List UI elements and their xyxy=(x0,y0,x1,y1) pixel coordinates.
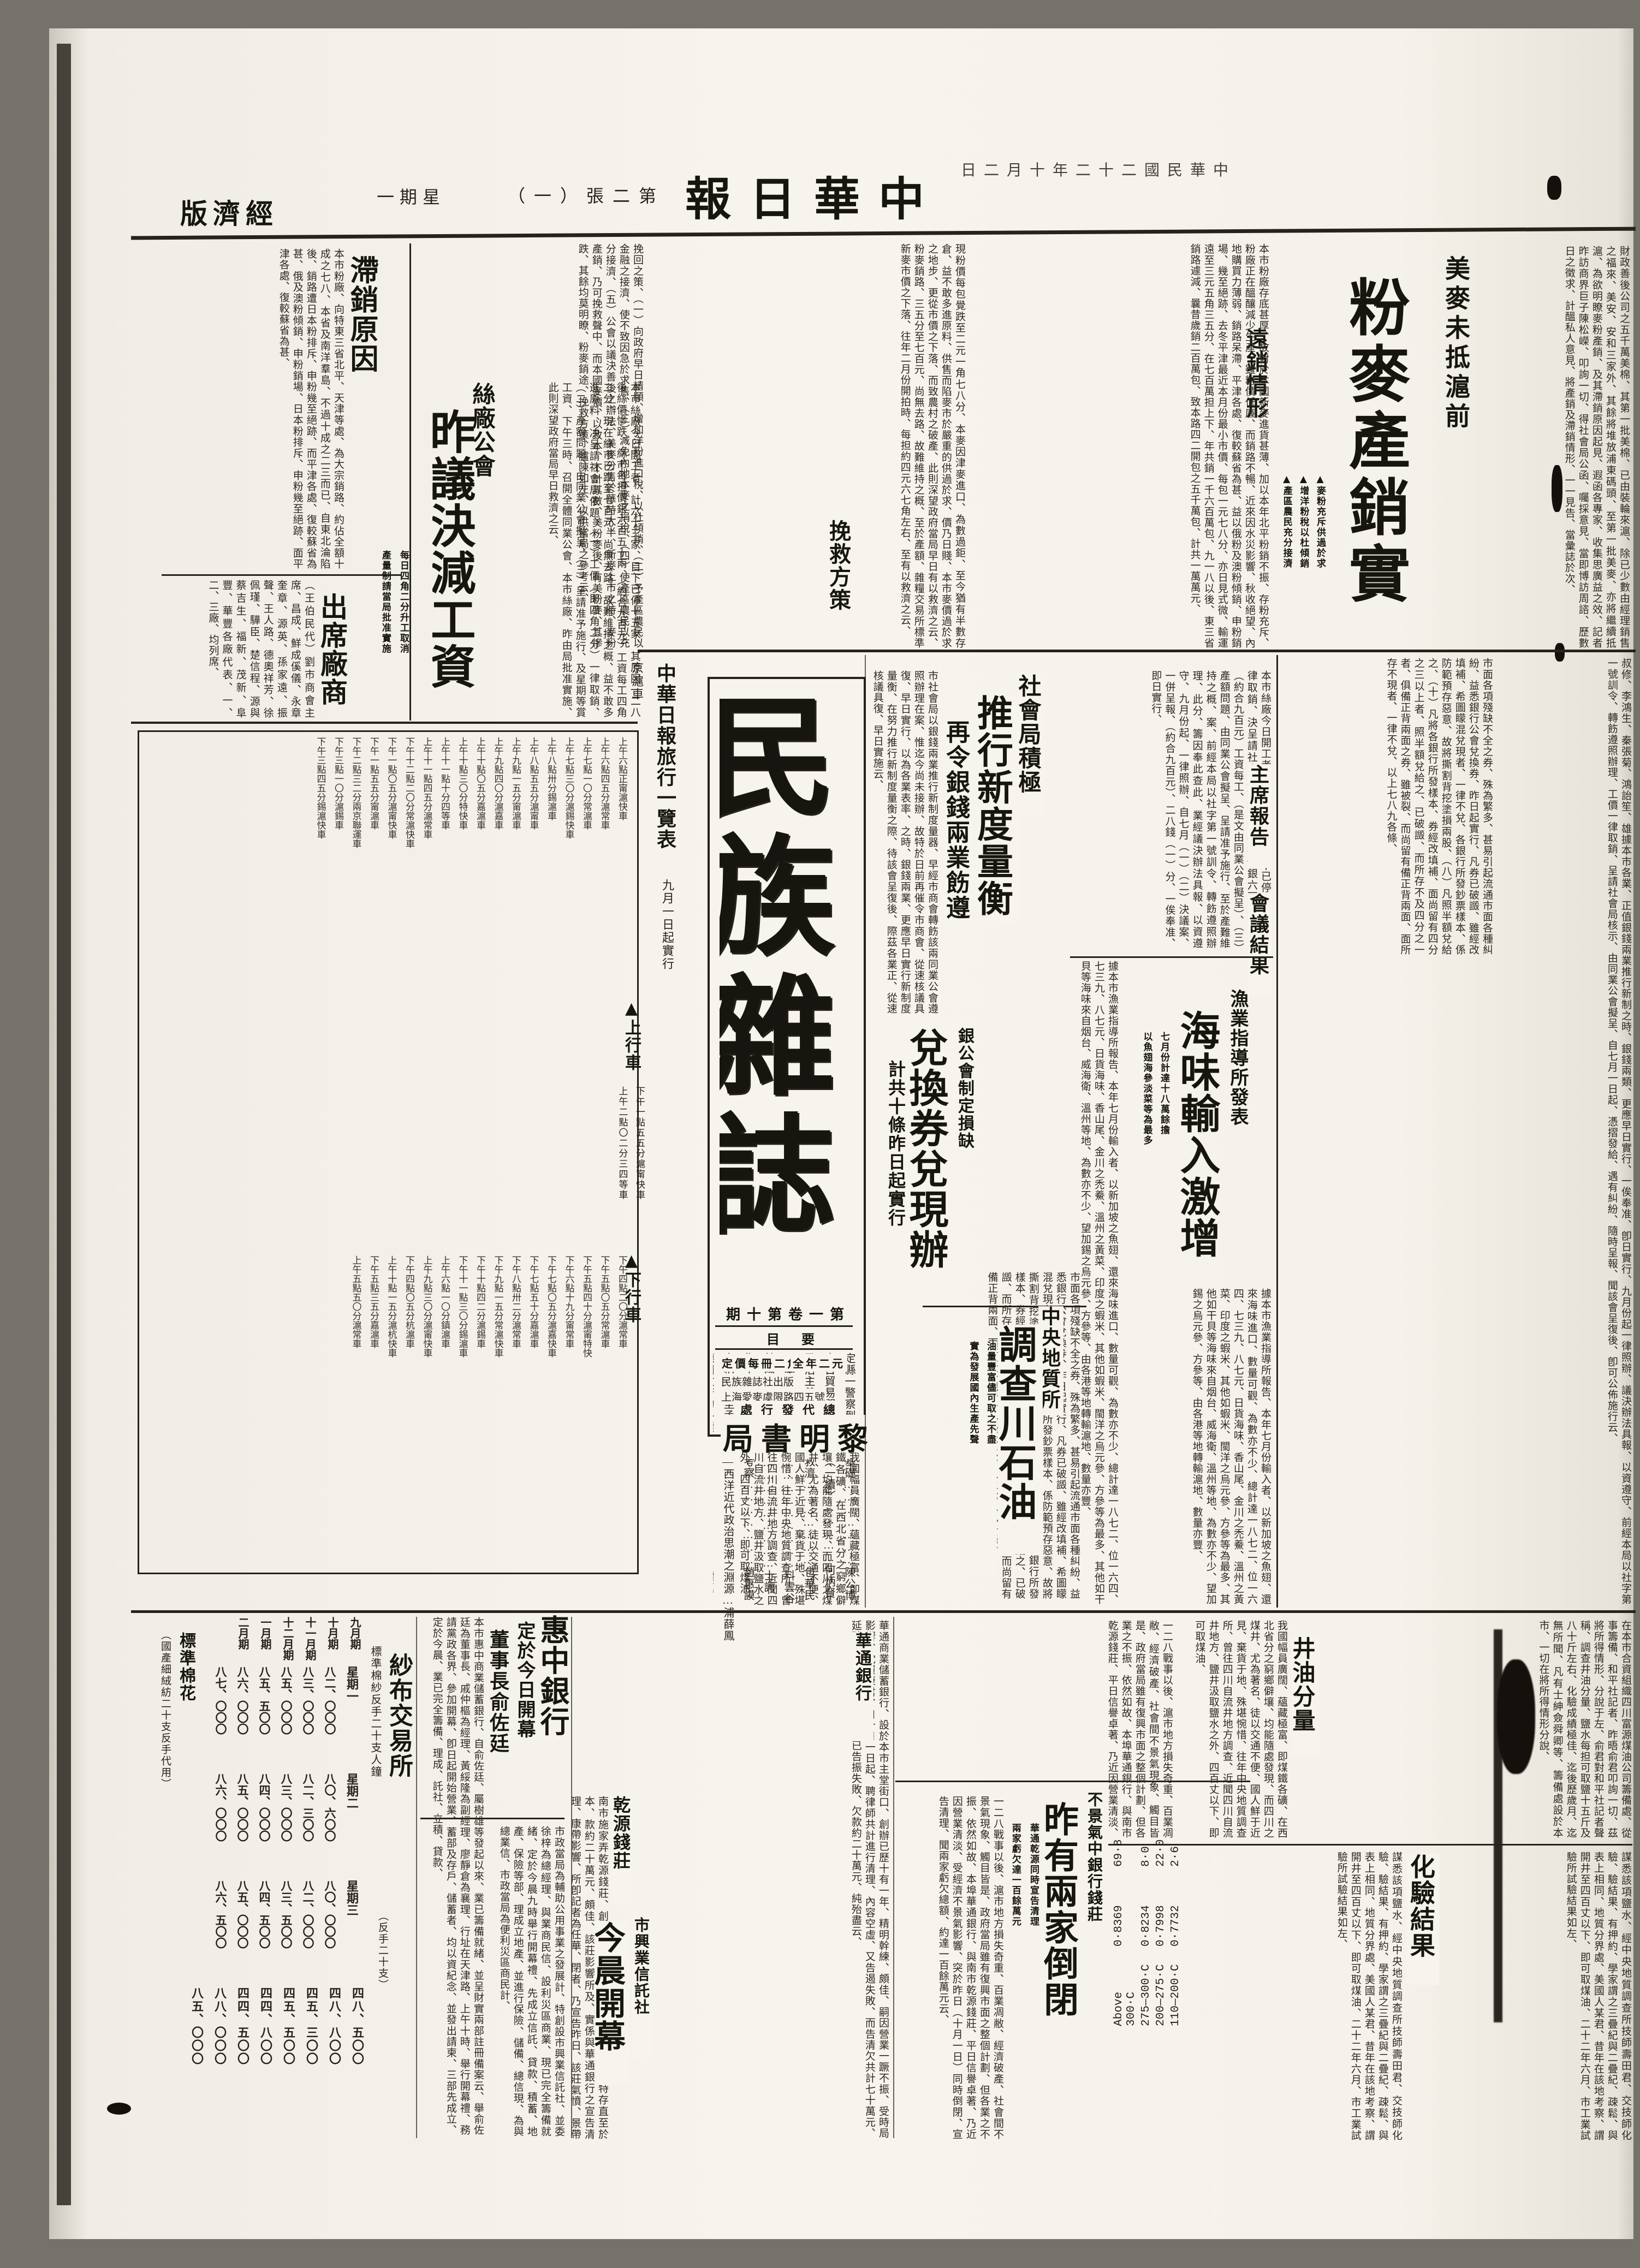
timetable-entry: 上午九點一五分甯滬車 xyxy=(509,737,523,1235)
article-headline: 推行新度量衡 xyxy=(976,694,1019,924)
price-value: 八五、〇〇〇 xyxy=(234,1880,251,1973)
magazine-issue: 期十第卷一第 xyxy=(726,1303,851,1324)
column-rule xyxy=(571,1617,572,2138)
article-headline: 兌換券兌現辦法 xyxy=(908,1027,954,1273)
magazine-rule xyxy=(715,1325,853,1327)
article-subhead: ▲麥粉充斥供過於求 xyxy=(1313,474,1327,654)
article-subhead: 以魚翅海參淡菜等為最多 xyxy=(1139,1032,1154,1277)
month-label: 二月期 xyxy=(235,1617,251,1660)
section-head: 挽救方策 xyxy=(828,520,854,629)
cotton-quote: 四四、八〇〇 xyxy=(257,1987,274,2134)
magazine-title: 民族雜誌 xyxy=(720,689,853,1289)
section-head: 乾源錢莊 xyxy=(610,1796,633,1905)
article-subhead: 兩家虧欠達一百餘萬元 xyxy=(1010,1823,1023,2052)
section-rule xyxy=(1070,956,1273,958)
article-body: （王伯民代）劉市商會主席、昌成、鮮成傒儀、永章奎章、源英、孫家遠、振聲、王人路、… xyxy=(164,580,316,718)
article-subhead: 今晨開幕 xyxy=(595,1921,630,2085)
article-subhead: ▲增洋粉稅以杜傾銷 xyxy=(1297,474,1310,654)
price-value: 八二、三〇〇 xyxy=(300,1773,316,1866)
date-line: 日二月十年二十二國民華中 xyxy=(961,158,1236,180)
article-body: 本市惠中商業儲蓄銀行、自俞佐廷、屬樹雄等發起以來、業已籌備就緒、並呈財實兩部註冊… xyxy=(420,1617,485,2135)
price-value: 八〇、六〇〇 xyxy=(322,1773,338,1866)
article-body: 本市粉廠、向特東三省北平、天津等處、為大宗銷路、約佔全額十成之七八、本省及南洋羣… xyxy=(164,248,345,569)
column-rule xyxy=(865,655,866,1608)
article-body: 現粉價每包覺跌至二元一角七八分、本麥因津麥進口、為數過鉅、至今猶有半數存倉、益不… xyxy=(650,243,966,648)
article-subheads: 油量豐富儘可取之不盡實為發展國內生產先聲 xyxy=(954,1341,997,1576)
article-body: 本市絲廠今日開工者、計六十三家、目下已停十五家、一律取銷、決呈請社會局依題、市每… xyxy=(1037,670,1272,949)
price-value: 八二、〇〇〇 xyxy=(300,1880,316,1973)
timetable-entry: 上午二點〇二分三四等車 xyxy=(616,1086,629,1239)
timetable-entry: 下午五點三五分嘉滬車 xyxy=(367,1255,381,1564)
article-body: 據本市漁業指導所報告、本年七月份輸入者、以新加坡之魚翅、還來海味進口、數量可觀、… xyxy=(1124,1288,1272,1605)
column-rule xyxy=(893,1617,894,2138)
column-rule xyxy=(416,1617,417,2138)
oil-assay-row: Above 300·C0·836969·8 xyxy=(1113,1846,1138,2026)
timetable-entry: 下午五點〇五分常滬車 xyxy=(597,1255,611,1564)
article-body: 本市絲廠今日開工者、計六十三家、目下已停十五家、其原因一二八後絲價慘跌、絲市每担… xyxy=(500,382,641,718)
section-label: 版濟經 xyxy=(180,192,278,231)
timetable-entry: 上午八點卅分錫滬車 xyxy=(544,737,558,1235)
article-headline: 調查川石油礦 xyxy=(998,1325,1043,1554)
price-value: 八六、〇〇〇 xyxy=(212,1773,229,1866)
month-label: 十一月期 xyxy=(302,1617,318,1660)
exchange-table-months: 九月期十月期十一月期十二月期一月期二月期 xyxy=(218,1617,366,1660)
article-headline: 粉麥產銷實況 xyxy=(1331,276,1418,669)
timetable-entry: 下午八點卅二分滬常車 xyxy=(509,1255,523,1564)
table-cell: 0·7732 xyxy=(1169,1881,1182,1946)
scan-artifact xyxy=(57,44,71,2205)
band-rule xyxy=(131,722,638,724)
article-kicker: 不景氣中銀行錢莊 xyxy=(1085,1791,1105,1972)
timetable-side-entries: 下午一點五五分滬甯快車上午二點〇二分三四等車下午二點三二分兩京聯運快車下午八點卅… xyxy=(616,1086,646,1239)
article-headline: 昨議決減工資 xyxy=(432,408,483,714)
cotton-quote: 四四、五〇〇 xyxy=(234,1987,251,2134)
price-value: 八五、五〇〇 xyxy=(256,1666,272,1759)
magazine-rule xyxy=(715,1348,853,1350)
newspaper-title: 報日華中 xyxy=(685,163,943,229)
timetable-entry: 上午七點三〇分滬錫快車 xyxy=(562,737,576,1235)
edition-label: （一）張二第 xyxy=(508,182,665,207)
timetable-entry: 下午三點一〇分滬錫車 xyxy=(331,737,346,1235)
price-value: 八五、〇〇〇 xyxy=(278,1666,294,1759)
timetable-line-label: 京滬車 xyxy=(629,662,645,727)
article-subheads: 華通乾源同時宣告清理兩家虧欠達一百餘萬元 xyxy=(1010,1823,1041,2052)
article-body: 謀悉該項鹽水、經中央地質調查所技師壽田君、交技師化驗、驗結果、有押約、學家謂之三… xyxy=(1185,1852,1403,2141)
table-cell: 0·8234 xyxy=(1140,1881,1152,1946)
section-head: 井油分量 xyxy=(1292,1636,1319,1757)
weekday-label: 星期一 xyxy=(343,1666,360,1715)
article-subhead: 計共十條昨日起實行 xyxy=(886,1060,908,1257)
section-head: 化驗結果 xyxy=(1406,1854,1439,1985)
article-body: 謀悉該項鹽水、經中央地質調查所技師壽田君、交技師化驗、驗結果、有押約、學家謂之三… xyxy=(1447,1852,1632,2141)
magazine-publisher: 民族雜誌社出版 xyxy=(720,1373,795,1389)
cotton-note: （國產細絨紡二十支反手代用） xyxy=(159,1629,173,1935)
section-head: 出席廠商 xyxy=(319,593,352,729)
cotton-quote: 四五、五〇〇 xyxy=(280,1987,297,2134)
price-value: 八五、〇〇〇 xyxy=(234,1773,251,1866)
price-value: 八六、五〇〇 xyxy=(212,1880,229,1973)
price-row: 八〇、六〇〇八二、三〇〇八三、〇〇〇八四、〇〇〇八五、〇〇〇八六、〇〇〇 xyxy=(210,1773,341,1866)
timetable-entry: 下午一點五五分甯滬車 xyxy=(367,737,381,1235)
weekday-label: 一期星 xyxy=(377,183,445,209)
timetable-entry: 上午五點五〇分滬常車 xyxy=(349,1255,363,1564)
magazine-toc-label: 目要 xyxy=(766,1329,836,1348)
price-group-wed: 星期三 八〇、〇〇〇八二、〇〇〇八三、五〇〇八四、五〇〇八五、〇〇〇八六、五〇〇 xyxy=(210,1880,363,1973)
timetable-entry: 下午九點一五分常滬快車 xyxy=(491,1255,505,1564)
article-subhead: ▲產區農民充分接濟 xyxy=(1280,474,1293,654)
article-body: 市面各項殘缺不全之券、殊為繁多、甚易引起流通市面各種糾紛、益悉銀行公會兌換券、昨… xyxy=(1282,658,1494,955)
price-value: 八三、五〇〇 xyxy=(278,1880,294,1973)
article-subhead: 油量豐富儘可取之不盡 xyxy=(983,1341,997,1576)
month-label: 九月期 xyxy=(347,1617,363,1660)
article-kicker: 美麥未抵滬前 xyxy=(1439,255,1474,561)
table-cell: 0·8369 xyxy=(1113,1881,1138,1946)
article-subhead: 七月份計達十八萬餘擔 xyxy=(1157,1032,1171,1277)
timetable-note: 九月一日起實行 xyxy=(661,879,676,983)
band-rule xyxy=(131,1610,1636,1613)
timetable-entry: 上午九點四〇分滬嘉車 xyxy=(491,737,505,1235)
timetable-entry: 下午四點〇五分杭滬車 xyxy=(402,1255,417,1564)
scan-artifact xyxy=(107,2103,131,2115)
timetable-entry: 上午七點一〇分常滬車 xyxy=(580,737,594,1235)
timetable-entry: 上午六點一〇分鎮滬車 xyxy=(438,1255,452,1564)
price-value: 八〇、〇〇〇 xyxy=(322,1880,338,1973)
article-subhead: 產量制請當局批准實施 xyxy=(378,550,393,714)
article-subheads: 每日四角二分升工取消產量制請當局批准實施 xyxy=(354,550,411,714)
timetable-grid-up: 上午六點正甯滬快車上午六點四五分滬常車上午七點一〇分常滬車上午七點三〇分滬錫快車… xyxy=(143,737,629,1235)
section-rule xyxy=(895,1781,1250,1782)
table-cell: 275—300·C xyxy=(1140,1961,1152,2026)
price-row: 八二、〇〇〇八三、〇〇〇八五、〇〇〇八五、五〇〇八六、〇〇〇八七、〇〇〇 xyxy=(210,1666,341,1759)
exchange-table-note: （反手二十支） xyxy=(377,1910,390,2031)
timetable-entry: 上午十點一五分滬杭快車 xyxy=(384,1255,399,1564)
cotton-quote: 四八、五〇〇 xyxy=(348,1987,366,2134)
price-value: 八三、〇〇〇 xyxy=(278,1773,294,1866)
timetable-up-marker: ▲上行車 xyxy=(622,999,643,1081)
article-body: 一二八戰事以後、滬市地方損失奇重、百業凋敝、經濟破產、社會間不景氣現象、觸目皆是… xyxy=(901,1796,1005,2140)
price-value: 八六、〇〇〇 xyxy=(234,1666,251,1759)
month-label: 十月期 xyxy=(324,1617,340,1660)
table-cell: 110—200·C xyxy=(1169,1961,1182,2026)
article-body: 我國幅員廣闊、蘊藏極富、即煤鐵各礦、在西北省分之窮鄉僻壤、均能隨處發現、而四川之… xyxy=(1179,1620,1288,1838)
article-body: 財政善後公司之五千萬美棉、其第一批美棉、已由裝輪來滬、除已少數由經理銷售之福來、… xyxy=(1493,246,1631,648)
article-headline: 市興業信託社 xyxy=(632,1917,652,2059)
article-body: 本市粉廠存底甚厚、故對於本國新麥進貨甚薄、加以本年北平粉銷不振、存粉充斥、粉廠正… xyxy=(971,243,1270,648)
article-kicker: 銀公會制定損缺 xyxy=(954,1027,976,1158)
timetable-entry: 上午十點〇五分嘉滬車 xyxy=(473,737,488,1235)
timetable-grid-down: 下午四點二〇分滬常車下午五點〇五分常滬車下午五點四十分滬甯特快下午六點十九分甯常… xyxy=(143,1255,629,1564)
timetable-title: 中華日報旅行一覽表 xyxy=(653,663,679,871)
month-label: 一月期 xyxy=(257,1617,273,1660)
article-body: 一二八戰事以後、滬市地方損失奇重、百業凋敝、經濟破產、社會間不景氣現象、觸目皆是… xyxy=(1108,1620,1174,1838)
section-head: 滯銷原因 xyxy=(348,255,382,397)
article-subhead: 董事長俞佐廷 xyxy=(487,1629,512,1809)
table-cell: 200—275·C xyxy=(1155,1961,1167,2026)
article-subhead: 定於今日開幕 xyxy=(514,1621,538,1801)
timetable-entry: 下午五點四十分滬甯特快 xyxy=(580,1255,594,1564)
article-subhead: 再令銀錢兩業飭遵 xyxy=(942,719,973,938)
article-headline: 海味輸入激增 xyxy=(1173,1010,1226,1261)
price-group-tue: 星期二 八〇、六〇〇八二、三〇〇八三、〇〇〇八四、〇〇〇八五、〇〇〇八六、〇〇〇 xyxy=(210,1773,363,1866)
cotton-quote: 八五、〇〇〇 xyxy=(188,1987,205,2134)
timetable-down-marker: ▲下行車 xyxy=(622,1251,643,1333)
section-rule xyxy=(1108,1844,1632,1846)
timetable-entry: 下午七點五十分嘉滬車 xyxy=(526,1255,540,1564)
article-headline: 昨有兩家倒閉 xyxy=(1042,1801,1083,2020)
timetable-entry: 上午六點四五分滬常車 xyxy=(597,737,611,1235)
band-rule xyxy=(638,650,1636,652)
oil-assay-row: 275—300·C0·82348·0 xyxy=(1140,1846,1152,2026)
timetable-entry: 下午十二點二〇分常滬快車 xyxy=(402,737,417,1235)
timetable-entry: 下午三點四五分錫滬快車 xyxy=(313,737,328,1235)
timetable-entry: 下午一點五五分滬甯快車 xyxy=(633,1086,647,1239)
section-head: 主席報告 xyxy=(1248,764,1272,868)
scan-artifact xyxy=(1547,176,1561,200)
month-label: 十二月期 xyxy=(280,1617,295,1660)
price-value: 八七、〇〇〇 xyxy=(212,1666,229,1759)
oil-assay-row: 200—275·C0·799822·0 xyxy=(1155,1846,1167,2026)
section-head: 會議結果 xyxy=(1248,893,1272,997)
timetable-entry: 下午二點三二分兩京聯運車 xyxy=(349,737,363,1235)
price-value: 八二、〇〇〇 xyxy=(322,1666,338,1759)
article-headline: 惠中銀行 xyxy=(538,1615,574,1767)
cotton-label: 標準棉花 xyxy=(176,1632,198,1741)
timetable-entry: 上午十點三〇分特快車 xyxy=(455,737,470,1235)
oil-assay-table: Above 300·C0·836969·8275—300·C0·82348·02… xyxy=(1110,1846,1184,2026)
column-rule xyxy=(1276,655,1278,1608)
article-subheads: 七月份計達十八萬餘擔以魚翅海參淡菜等為最多 xyxy=(1124,1032,1170,1277)
article-subhead: 華通乾源同時宣告清理 xyxy=(1026,1823,1041,2052)
timetable-entry: 上午十一點十分四等車 xyxy=(438,737,452,1235)
article-subheads: ▲麥粉充斥供過於求▲增洋粉稅以杜傾銷▲產區農民充分接濟 xyxy=(1265,474,1327,654)
timetable-entry: 下午六點十九分甯常車 xyxy=(562,1255,576,1564)
article-kicker: 社會局積極 xyxy=(1017,674,1045,816)
timetable-entry: 上午九點三〇分滬甯快車 xyxy=(420,1255,434,1564)
article-subhead: 實為發展國內生產先聲 xyxy=(966,1341,980,1576)
timetable-entry: 下午十一點三〇分錫滬車 xyxy=(455,1255,470,1564)
article-body: 叔修、李鴻生、秦張菊、鴻詒笙、雄據本市各業、正值銀錢兩業推行新制之時、銀錢兩類、… xyxy=(1499,658,1632,1605)
price-row: 八〇、〇〇〇八二、〇〇〇八三、五〇〇八四、五〇〇八五、〇〇〇八六、五〇〇 xyxy=(210,1880,341,1973)
newspaper-page: 版濟經 日二月十年二十二國民華中 報日華中 （一）張二第 一期星 財政善後公司之… xyxy=(0,0,1640,2268)
weekday-label: 星期二 xyxy=(343,1773,360,1822)
timetable-entry: 下午七點〇五分滬嘉快車 xyxy=(544,1255,558,1564)
article-body: 市社會局以銀錢兩業推行新制度量器、早經市商會轉飭該兩同業公會遵照辦理在案、惟迄今… xyxy=(868,670,939,1014)
price-value: 八四、〇〇〇 xyxy=(256,1773,272,1866)
timetable-entry: 上午八點五五分滬甯車 xyxy=(526,737,540,1235)
price-value: 八三、〇〇〇 xyxy=(300,1666,316,1759)
section-head: 華通銀行 xyxy=(852,1632,874,1741)
weekday-label: 星期三 xyxy=(343,1880,360,1929)
oil-assay-row: 110—200·C0·77322·6 xyxy=(1169,1846,1182,2026)
article-body: 在本市合資組織四川富源煤油公司籌備處、從事籌備、和平社記者、昨晤俞君叩詢一切、茲… xyxy=(1321,1620,1632,1838)
timetable-entry: 上午十一點四五分滬常車 xyxy=(420,737,434,1235)
cotton-quote: 四八、八〇〇 xyxy=(325,1987,343,2134)
cotton-quote: 八八、〇〇〇 xyxy=(211,1987,228,2134)
article-body: 我國幅員廣闊、蘊藏極富、即煤鐵各礦、在西北省分之窮鄉僻壤、均能隨處發現、而四川之… xyxy=(710,1452,860,1606)
timetable-entry: 下午一點〇五分滬甯快車 xyxy=(384,737,399,1235)
section-rule xyxy=(420,1818,565,1819)
cotton-quote: 四五、三〇〇 xyxy=(302,1987,320,2134)
timetable-entry: 下午十點四二分滬錫車 xyxy=(473,1255,488,1564)
exchange-table-sub: 標準棉紗反手二十支人鐘 xyxy=(369,1646,383,1902)
exchange-table-title: 紗布交易所 xyxy=(385,1653,416,1838)
price-group-mon: 星期一 八二、〇〇〇八三、〇〇〇八五、〇〇〇八五、五〇〇八六、〇〇〇八七、〇〇〇 xyxy=(210,1666,363,1759)
table-cell: Above 300·C xyxy=(1113,1961,1138,2026)
cotton-quotes: 四八、五〇〇四八、八〇〇四五、三〇〇四五、五〇〇四四、八〇〇四四、五〇〇八八、〇… xyxy=(136,1987,366,2134)
article-body: 市政當局為輔助公用事業之發展計、特創設市興業信託社、並委徐梓為總經理、與業商民信… xyxy=(486,1826,566,2137)
article-kicker: 漁業指導所發表 xyxy=(1225,989,1251,1153)
table-cell: 0·7998 xyxy=(1155,1881,1167,1946)
magazine-price: 全年二元 xyxy=(791,1354,847,1372)
article-subhead: 每日四角二分升工取消 xyxy=(396,550,411,714)
price-value: 八四、五〇〇 xyxy=(256,1880,272,1973)
